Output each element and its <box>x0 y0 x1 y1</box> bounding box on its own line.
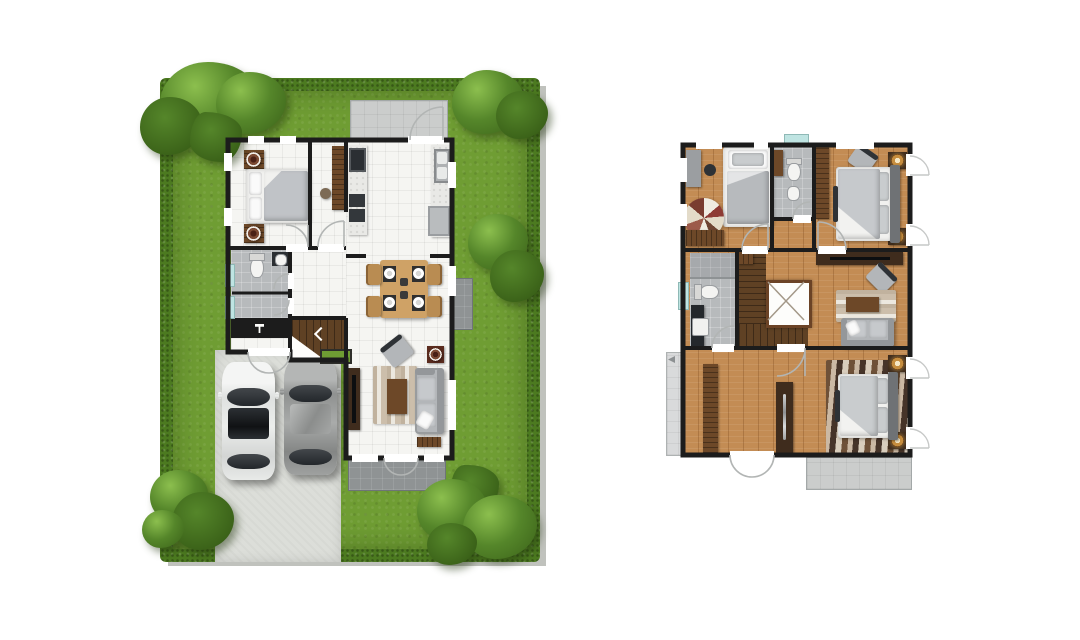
sofa <box>415 368 444 434</box>
bed-pillow <box>249 172 262 195</box>
car-gray <box>284 359 337 475</box>
low-cabinet <box>686 230 724 246</box>
bed-blanket <box>264 171 308 221</box>
hall-console <box>738 252 753 264</box>
nightstand-plant <box>246 226 261 241</box>
car-rear-window <box>289 449 332 464</box>
side-table-plant <box>429 348 442 361</box>
dining-chair <box>366 264 381 285</box>
car-mirror <box>275 392 279 399</box>
car-mirror <box>218 392 222 399</box>
car-windshield <box>289 385 332 402</box>
stair-void-open-below <box>766 280 812 328</box>
tree-cluster-bottom-left <box>142 462 242 562</box>
wardrobe <box>703 364 718 453</box>
bed-bench <box>833 186 838 222</box>
tv-screen <box>352 375 356 423</box>
sofa-armrest <box>888 318 894 347</box>
nightstand-lamp <box>891 357 904 370</box>
vanity-basin <box>784 134 809 147</box>
car-roof <box>228 408 268 439</box>
sofa-end-table <box>417 437 441 447</box>
plate <box>413 268 424 279</box>
dining-chair <box>427 296 442 317</box>
dining-chair <box>366 296 381 317</box>
toilet-tank <box>249 253 265 261</box>
toilet <box>250 258 264 278</box>
bed-bench <box>835 390 840 422</box>
sofa-back <box>437 368 444 434</box>
bed-blanket <box>838 169 880 239</box>
kitchen-island <box>428 206 450 236</box>
bed-pillow <box>249 197 262 220</box>
window-teal <box>225 296 235 319</box>
dressing-stool <box>320 188 331 199</box>
sink-basin <box>437 167 447 179</box>
plate <box>384 297 395 308</box>
stove-burners <box>349 209 365 222</box>
desk <box>686 150 701 187</box>
toilet-tank <box>694 284 702 300</box>
dining-chair <box>427 264 442 285</box>
sink-basin <box>437 152 447 164</box>
bed-headboard <box>888 372 898 440</box>
bath-sink <box>787 186 800 201</box>
bath-cabinet <box>774 150 783 176</box>
bed-blanket <box>727 171 769 224</box>
tree-cluster-bottom-right <box>415 465 540 565</box>
car-mirror <box>280 388 284 395</box>
tree-cluster-top-left <box>140 52 290 172</box>
kitchen-sink <box>434 149 450 183</box>
plate <box>384 268 395 279</box>
shower-area <box>690 253 737 279</box>
range-hood-appliance <box>349 148 366 172</box>
stair-planter <box>320 349 352 364</box>
table-centerpiece <box>400 278 408 286</box>
sofa-armrest <box>415 368 435 375</box>
sofa-cushion <box>869 320 887 338</box>
toilet <box>700 285 719 299</box>
floor-plans-scene <box>0 0 1080 640</box>
bath-sink <box>275 254 287 266</box>
car-roof <box>290 404 330 434</box>
bed-pillow <box>732 153 764 166</box>
table-centerpiece <box>400 291 408 299</box>
master-wardrobe <box>816 147 829 219</box>
entry-closet <box>231 318 290 338</box>
coffee-table <box>387 379 407 414</box>
rear-patio <box>350 100 448 142</box>
desk-chair <box>704 164 716 176</box>
hall-floor <box>290 249 346 318</box>
window-teal <box>225 264 235 287</box>
plate <box>413 297 424 308</box>
sofa <box>841 318 894 347</box>
sofa-back <box>841 340 894 347</box>
divider-cabinet <box>776 382 793 453</box>
stair-cut <box>292 336 322 358</box>
bedroom-wardrobe <box>332 146 346 210</box>
car-mirror <box>337 388 341 395</box>
stair-direction-arrow <box>314 327 328 341</box>
cabinet-handle <box>783 394 786 440</box>
coffee-table <box>846 297 879 312</box>
window-teal <box>678 282 689 310</box>
balcony-bottom-right <box>806 457 912 490</box>
bed-headboard <box>890 165 900 243</box>
tv-screen <box>830 257 890 260</box>
sofa-cushion <box>417 377 436 401</box>
tree-cluster-right <box>464 210 549 310</box>
bath-sink <box>692 318 709 336</box>
laundry-floor <box>231 293 290 318</box>
bed-blanket <box>840 376 878 436</box>
stove-burners <box>349 194 365 207</box>
tree-cluster-top-right <box>450 65 550 155</box>
entry-porch-floor <box>231 338 290 352</box>
toilet <box>787 163 801 181</box>
car-windshield <box>227 388 270 406</box>
